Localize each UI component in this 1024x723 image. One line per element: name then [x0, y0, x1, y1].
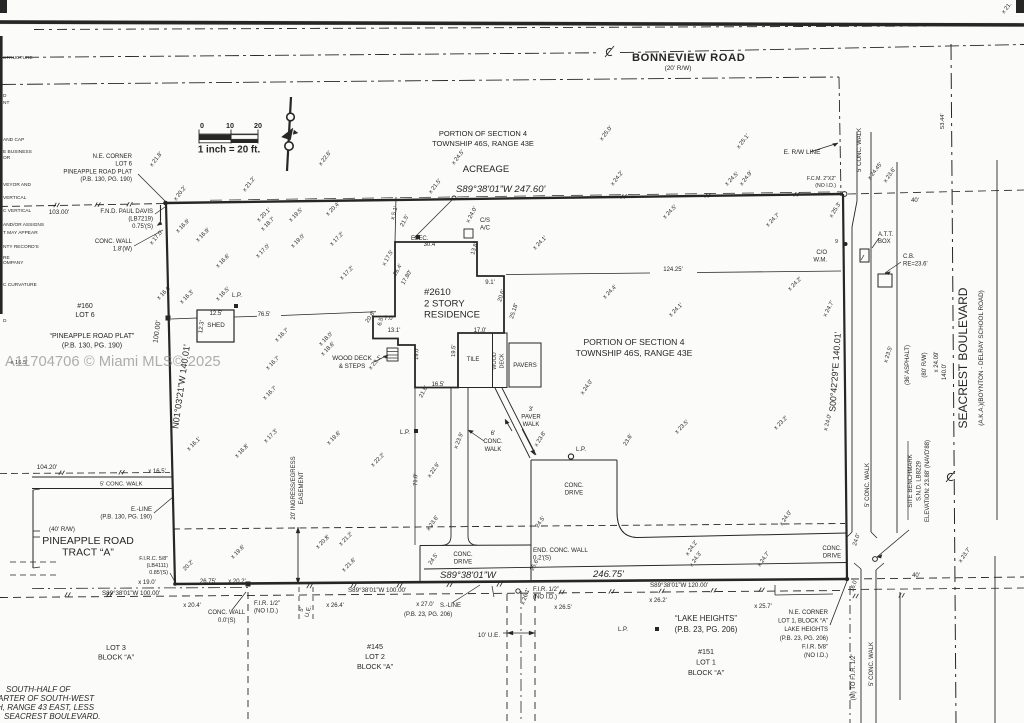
svg-text:#2610: #2610 [424, 287, 451, 298]
svg-text:(LB7219): (LB7219) [128, 217, 153, 223]
svg-text:x 24.09': x 24.09' [934, 352, 940, 373]
svg-text:“LAKE HEIGHTS”: “LAKE HEIGHTS” [675, 614, 737, 623]
svg-text:LAKE HEIGHTS: LAKE HEIGHTS [784, 627, 828, 633]
svg-text:S00°42'29”E 140.01': S00°42'29”E 140.01' [827, 331, 843, 412]
svg-text:x 20.4': x 20.4' [183, 603, 201, 609]
svg-text:CONC. WALL: CONC. WALL [208, 610, 246, 616]
svg-text:x 20.8': x 20.8' [315, 534, 331, 550]
svg-text:C CURVATURE: C CURVATURE [3, 282, 37, 288]
svg-text:PAVER: PAVER [521, 415, 541, 421]
svg-text:x 21.: x 21. [1001, 1, 1014, 15]
svg-text:x 21.2': x 21.2' [338, 531, 354, 547]
svg-text:(P.B. 23, PG. 206): (P.B. 23, PG. 206) [780, 636, 828, 642]
svg-text:20: 20 [254, 121, 262, 130]
svg-text:(NO I.D.): (NO I.D.) [804, 653, 828, 659]
svg-text:x 24.9': x 24.9' [739, 170, 754, 187]
svg-text:(P.B. 23, PG. 206): (P.B. 23, PG. 206) [404, 612, 452, 618]
svg-text:x 24.7': x 24.7' [757, 551, 772, 568]
svg-text:5' CONC. WALK: 5' CONC. WALK [865, 463, 871, 507]
svg-text:L.P.: L.P. [400, 430, 410, 436]
svg-text:19.5': 19.5' [451, 344, 457, 357]
svg-text:24.0': 24.0' [852, 533, 862, 547]
svg-text:ARTER OF SOUTH-WEST: ARTER OF SOUTH-WEST [0, 694, 95, 703]
svg-text:LOT 6: LOT 6 [75, 312, 94, 319]
svg-text:BLOCK “A”: BLOCK “A” [688, 668, 725, 677]
svg-text:SHED: SHED [207, 322, 225, 329]
svg-text:LOT 3: LOT 3 [106, 643, 126, 652]
svg-text:WOOD: WOOD [492, 352, 498, 369]
svg-text:PORTION OF SECTION 4: PORTION OF SECTION 4 [583, 337, 684, 347]
svg-text:x 21.5': x 21.5' [428, 178, 443, 195]
svg-text:30.4': 30.4' [424, 242, 437, 248]
svg-text:(P.B. 130, PG. 190): (P.B. 130, PG. 190) [80, 177, 132, 183]
svg-text:x 19.6': x 19.6' [326, 430, 342, 446]
svg-text:(36' ASPHALT): (36' ASPHALT) [905, 345, 911, 385]
svg-text:19.0': 19.0' [414, 347, 420, 360]
svg-text:x 16.9': x 16.9' [175, 218, 191, 234]
svg-text:(A.K.A.)(BOYNTON - DELRAY SCHO: (A.K.A.)(BOYNTON - DELRAY SCHOOL ROAD) [978, 290, 985, 426]
svg-text:WOOD DECK: WOOD DECK [332, 355, 372, 362]
svg-text:x 27.0': x 27.0' [416, 602, 434, 608]
svg-text:x 19.0': x 19.0' [138, 580, 156, 586]
svg-text:AND/OR ASSIGNS: AND/OR ASSIGNS [3, 222, 44, 228]
svg-text:(LB4111): (LB4111) [147, 563, 169, 569]
svg-text:100.00': 100.00' [152, 320, 162, 344]
svg-text:x 24.0': x 24.0' [779, 510, 794, 527]
svg-text:1 inch = 20 ft.: 1 inch = 20 ft. [198, 145, 261, 156]
svg-text:x 26.1': x 26.1' [520, 588, 531, 606]
svg-text:(P.B. 130, PG. 190): (P.B. 130, PG. 190) [100, 515, 152, 521]
svg-text:& STEPS: & STEPS [339, 363, 366, 370]
svg-text:x 26.2': x 26.2' [649, 598, 667, 604]
svg-text:x 23.5': x 23.5' [674, 419, 690, 435]
svg-text:9: 9 [835, 239, 838, 245]
svg-text:ELEC.: ELEC. [411, 236, 429, 242]
svg-text:“PINEAPPLE ROAD PLAT”: “PINEAPPLE ROAD PLAT” [50, 333, 135, 340]
svg-text:9.1': 9.1' [485, 280, 495, 286]
svg-text:40': 40' [911, 198, 919, 204]
svg-text:x 24.7': x 24.7' [822, 300, 835, 318]
svg-text:C/O: C/O [816, 250, 827, 256]
svg-text:CONC.: CONC. [453, 552, 473, 558]
svg-text:7.0': 7.0' [384, 316, 394, 322]
svg-text:x 16.9': x 16.9' [195, 227, 211, 243]
svg-text:5' CONC. WALK: 5' CONC. WALK [100, 482, 143, 488]
svg-text:x 19.0': x 19.0' [290, 233, 306, 249]
svg-text:x 17.0': x 17.0' [149, 229, 164, 246]
svg-text:F.C.M. 2”X2”: F.C.M. 2”X2” [807, 176, 836, 182]
svg-text:0: 0 [200, 121, 204, 130]
svg-text:T MAY APPEAR: T MAY APPEAR [3, 230, 38, 236]
svg-text:VERTICAL: VERTICAL [3, 195, 27, 201]
svg-text:x 23.2': x 23.2' [773, 415, 789, 431]
svg-text:x 16.8': x 16.8' [234, 443, 250, 459]
svg-text:x 23.5': x 23.5' [883, 346, 894, 364]
svg-text:x 26.4': x 26.4' [326, 603, 344, 609]
svg-text:SEACREST BOULEVARD.: SEACREST BOULEVARD. [4, 712, 100, 721]
svg-text:x 16.5': x 16.5' [148, 469, 166, 475]
svg-text:(NO I.D.): (NO I.D.) [254, 608, 278, 614]
svg-text:NT: NT [3, 100, 9, 106]
svg-text:0.2'(S): 0.2'(S) [533, 555, 551, 562]
svg-text:NTY RECORD'S: NTY RECORD'S [3, 244, 39, 250]
svg-text:x 17.3': x 17.3' [263, 428, 279, 444]
svg-text:F.I.R. 1/2”: F.I.R. 1/2” [254, 601, 280, 607]
svg-text:BONNEVIEW ROAD: BONNEVIEW ROAD [632, 52, 745, 64]
svg-text:0.0'(S): 0.0'(S) [218, 618, 235, 624]
svg-text:CONC. WALL: CONC. WALL [95, 239, 133, 245]
svg-text:C.B.: C.B. [903, 254, 915, 260]
svg-text:x 24.2': x 24.2' [610, 170, 625, 187]
svg-text:S89°38'01”W 100.00': S89°38'01”W 100.00' [102, 590, 160, 597]
svg-text:21.5': 21.5' [399, 214, 410, 228]
svg-text:24.5': 24.5' [535, 516, 547, 530]
svg-text:LOT 1: LOT 1 [696, 658, 716, 667]
svg-text:x 22.6': x 22.6' [318, 150, 333, 167]
svg-text:x 16.7': x 16.7' [262, 385, 278, 401]
svg-text:x 23.6': x 23.6' [883, 167, 898, 184]
svg-text:124.25': 124.25' [663, 267, 683, 273]
svg-text:x 16.7': x 16.7' [274, 327, 290, 343]
svg-text:W.M.: W.M. [813, 258, 827, 264]
svg-text:N.E. CORNER: N.E. CORNER [93, 154, 133, 160]
svg-text:BLOCK “A”: BLOCK “A” [98, 653, 135, 662]
svg-text:25.18': 25.18' [509, 303, 520, 320]
svg-text:L.P.: L.P. [232, 293, 242, 299]
svg-text:10' U.E.: 10' U.E. [478, 632, 500, 639]
svg-text:#145: #145 [367, 642, 383, 651]
svg-text:S.N.D. LB8229: S.N.D. LB8229 [917, 460, 923, 501]
svg-text:x 24.7': x 24.7' [765, 212, 781, 228]
svg-text:OMPANY: OMPANY [3, 260, 24, 266]
svg-text:ELEVATION: 23.88' (NAVD'88): ELEVATION: 23.88' (NAVD'88) [925, 440, 931, 522]
svg-text:S89°38'01”W: S89°38'01”W [440, 570, 497, 581]
svg-text:LOT 2: LOT 2 [365, 652, 385, 661]
svg-text:140.0': 140.0' [942, 364, 948, 380]
svg-text:PORTION OF SECTION 4: PORTION OF SECTION 4 [439, 129, 527, 138]
svg-text:x 25.0': x 25.0' [599, 125, 614, 142]
svg-text:WALK: WALK [485, 447, 502, 453]
svg-text:3': 3' [529, 407, 533, 413]
svg-text:PINEAPPLE ROAD: PINEAPPLE ROAD [42, 535, 134, 547]
svg-text:71.0': 71.0' [413, 473, 419, 486]
svg-text:x 20.4': x 20.4' [325, 201, 341, 217]
svg-text:x 24.0': x 24.0' [580, 379, 595, 396]
svg-text:x 21.8': x 21.8' [149, 151, 164, 168]
svg-text:40': 40' [912, 573, 920, 579]
svg-text:x 24.0': x 24.0' [823, 414, 833, 432]
svg-text:TILE: TILE [467, 357, 480, 363]
svg-text:x 20.2': x 20.2' [228, 579, 246, 585]
svg-text:20' INGRESS/EGRESS: 20' INGRESS/EGRESS [291, 456, 297, 519]
svg-text:10: 10 [226, 121, 234, 130]
svg-text:16.5': 16.5' [432, 382, 445, 388]
svg-text:12.5': 12.5' [210, 311, 223, 317]
svg-text:1.8'(W): 1.8'(W) [113, 247, 132, 253]
svg-text:RE=23.6': RE=23.6' [903, 262, 928, 268]
svg-text:S.-LINE: S.-LINE [440, 603, 461, 609]
svg-text:246.75': 246.75' [592, 569, 625, 580]
svg-text:C VERTICAL: C VERTICAL [3, 208, 31, 214]
svg-text:x 17.5': x 17.5' [382, 249, 396, 267]
svg-text:x 23.9': x 23.9' [453, 432, 465, 450]
svg-text:DECK: DECK [500, 353, 506, 368]
svg-text:103.00': 103.00' [49, 209, 69, 216]
svg-text:x 23.7': x 23.7' [958, 547, 973, 564]
svg-text:#151: #151 [698, 647, 714, 656]
svg-text:(P.B. 130, PG. 190): (P.B. 130, PG. 190) [62, 343, 122, 350]
svg-text:E.-LINE: E.-LINE [131, 507, 152, 513]
svg-text:A/C: A/C [480, 226, 491, 232]
svg-text:x 17.0': x 17.0' [255, 243, 271, 259]
svg-text:x 24.5': x 24.5' [662, 204, 678, 220]
svg-text:x 19.6': x 19.6' [230, 544, 246, 560]
svg-text:(NO I.D.): (NO I.D.) [815, 183, 836, 189]
svg-text:END. CONC. WALL: END. CONC. WALL [533, 547, 588, 554]
svg-text:24.5': 24.5' [428, 553, 440, 567]
svg-text:LOT 1, BLOCK “A”: LOT 1, BLOCK “A” [778, 619, 828, 625]
svg-text:D: D [3, 318, 7, 324]
svg-text:0.85'(S): 0.85'(S) [149, 570, 168, 576]
svg-text:x 26.5': x 26.5' [554, 605, 572, 611]
svg-text:H, RANGE 43 EAST, LESS: H, RANGE 43 EAST, LESS [0, 703, 95, 712]
svg-text:x 24.5': x 24.5' [724, 171, 740, 187]
svg-text:x 22.9': x 22.9' [427, 462, 442, 479]
svg-text:x 25.7': x 25.7' [754, 604, 772, 610]
svg-text:x 16.7': x 16.7' [265, 355, 281, 371]
svg-text:F.I.R. 5/8”: F.I.R. 5/8” [802, 644, 828, 650]
svg-text:E. R/W LINE: E. R/W LINE [784, 149, 822, 156]
svg-text:STRUCTURE: STRUCTURE [3, 55, 33, 61]
svg-text:S89°38'01”W 100.00': S89°38'01”W 100.00' [348, 587, 406, 594]
svg-text:x 16.6': x 16.6' [215, 253, 231, 269]
svg-text:x 24.0': x 24.0' [465, 206, 478, 224]
svg-text:E BUSINESS: E BUSINESS [3, 149, 32, 155]
svg-text:(P.B. 23, PG. 206): (P.B. 23, PG. 206) [675, 625, 738, 634]
svg-text:CONC.: CONC. [483, 439, 503, 445]
svg-text:S89°38'01”W 120.00': S89°38'01”W 120.00' [650, 582, 708, 589]
svg-text:AND CAP: AND CAP [3, 137, 24, 143]
svg-text:TOWNSHIP 46S, RANGE 43E: TOWNSHIP 46S, RANGE 43E [576, 348, 693, 358]
svg-text:BOX: BOX [878, 239, 891, 245]
svg-text:104.20': 104.20' [37, 464, 57, 471]
svg-text:PAVERS: PAVERS [513, 363, 536, 369]
svg-text:(M) TO F.I.R. 1/2”: (M) TO F.I.R. 1/2” [851, 654, 857, 700]
svg-text:76.5': 76.5' [258, 312, 271, 318]
svg-text:6': 6' [491, 431, 495, 437]
svg-text:S89°38'01”W 247.60': S89°38'01”W 247.60' [456, 184, 546, 195]
svg-text:26.75': 26.75' [200, 579, 216, 585]
svg-text:TRACT “A”: TRACT “A” [62, 547, 114, 559]
svg-text:0.75'(S): 0.75'(S) [132, 224, 153, 230]
svg-text:LOT 6: LOT 6 [115, 162, 132, 168]
svg-text:CONC.: CONC. [564, 483, 584, 489]
svg-text:17.0': 17.0' [474, 328, 487, 334]
svg-text:13.8': 13.8' [470, 242, 480, 256]
svg-text:x 5.1': x 5.1' [390, 206, 399, 221]
svg-text:x 16.3': x 16.3' [179, 289, 195, 305]
svg-text:OR: OR [3, 155, 11, 161]
svg-text:TOWNSHIP 46S, RANGE 43E: TOWNSHIP 46S, RANGE 43E [432, 139, 534, 148]
svg-text:#160: #160 [77, 303, 93, 310]
svg-text:12.3': 12.3' [198, 320, 206, 334]
svg-text:x 23.8': x 23.8' [534, 431, 548, 449]
svg-text:16.0: 16.0 [849, 580, 859, 593]
svg-text:x 19.5': x 19.5' [288, 207, 304, 223]
svg-text:F.N.D. PAUL DAVIS: F.N.D. PAUL DAVIS [100, 209, 153, 215]
svg-text:DRIVE: DRIVE [454, 560, 472, 566]
svg-text:x 25.1': x 25.1' [736, 133, 751, 150]
svg-text:x 24.1': x 24.1' [532, 235, 548, 251]
svg-text:(NO I.D.): (NO I.D.) [533, 594, 557, 600]
svg-text:ACREAGE: ACREAGE [463, 164, 509, 175]
svg-text:x 23.6': x 23.6' [426, 515, 441, 532]
svg-text:x 22.2': x 22.2' [370, 452, 386, 468]
svg-text:RESIDENCE: RESIDENCE [424, 310, 480, 321]
svg-text:20.6': 20.6' [497, 289, 507, 303]
svg-text:2 STORY: 2 STORY [424, 298, 465, 309]
svg-text:x 16.5': x 16.5' [215, 286, 231, 302]
svg-text:SOUTH-HALF OF: SOUTH-HALF OF [6, 685, 71, 694]
svg-text:(80' R/W): (80' R/W) [922, 352, 928, 377]
svg-text:C/S: C/S [480, 218, 490, 224]
svg-text:VEYOR AND: VEYOR AND [3, 182, 32, 188]
svg-text:x 17.2': x 17.2' [339, 265, 355, 281]
svg-text:x 24.1': x 24.1' [668, 302, 684, 318]
svg-text:D: D [3, 93, 7, 99]
svg-text:WALK: WALK [523, 422, 540, 428]
svg-text:F.I.R. 1/2”: F.I.R. 1/2” [533, 587, 559, 593]
svg-text:x 20.2': x 20.2' [173, 185, 188, 202]
svg-text:5' CONC. WALK: 5' CONC. WALK [869, 642, 875, 686]
svg-text:F.I.R.C. 5/8”: F.I.R.C. 5/8” [139, 556, 168, 562]
svg-text:x 16.6': x 16.6' [156, 285, 172, 301]
svg-text:L.P.: L.P. [576, 447, 586, 453]
svg-text:x 21.6': x 21.6' [341, 557, 357, 573]
svg-text:x 17.2': x 17.2' [329, 231, 345, 247]
svg-text:U.E.: U.E. [304, 605, 313, 618]
svg-text:SITE BENCHMARK: SITE BENCHMARK [908, 454, 914, 507]
svg-text:x 16.1': x 16.1' [186, 436, 202, 452]
svg-text:N.E. CORNER: N.E. CORNER [789, 610, 829, 616]
svg-text:PINEAPPLE ROAD PLAT: PINEAPPLE ROAD PLAT [63, 169, 132, 175]
svg-text:DRIVE: DRIVE [823, 554, 841, 560]
svg-text:x 24.4': x 24.4' [602, 284, 618, 300]
svg-text:BLOCK “A”: BLOCK “A” [357, 662, 394, 671]
svg-text:(40' R/W): (40' R/W) [49, 526, 75, 533]
svg-text:CONC.: CONC. [822, 546, 842, 552]
svg-text:(20' R/W): (20' R/W) [665, 65, 692, 72]
svg-text:L.P.: L.P. [618, 627, 628, 633]
svg-text:x 24.45': x 24.45' [867, 162, 884, 182]
svg-text:x 24.2': x 24.2' [787, 276, 803, 292]
svg-text:5': 5' [299, 607, 306, 613]
svg-text:DRIVE: DRIVE [565, 491, 583, 497]
svg-text:5' CONC. WALK: 5' CONC. WALK [857, 128, 863, 172]
svg-text:20.2': 20.2' [182, 559, 195, 572]
svg-text:A.T.T.: A.T.T. [878, 232, 893, 238]
svg-text:13.1': 13.1' [388, 328, 401, 334]
svg-text:EASEMENT: EASEMENT [299, 471, 305, 504]
svg-text:53.44': 53.44' [940, 113, 946, 129]
svg-text:x 21.2': x 21.2' [242, 176, 257, 193]
svg-text:17.80': 17.80' [401, 269, 414, 286]
svg-text:x 25.3': x 25.3' [829, 202, 843, 220]
svg-text:23.6': 23.6' [623, 433, 635, 447]
svg-text:SEACREST BOULEVARD: SEACREST BOULEVARD [956, 287, 970, 428]
